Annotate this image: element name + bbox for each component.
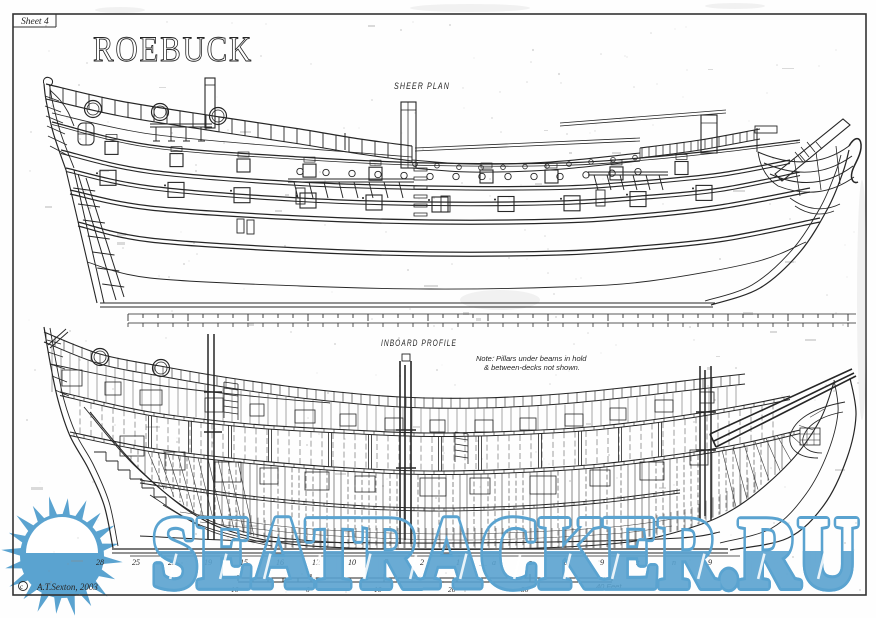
svg-text:INBOARD PROFILE: INBOARD PROFILE (381, 338, 457, 349)
svg-text:& between-decks not shown.: & between-decks not shown. (484, 363, 580, 372)
svg-text:ROEBUCK: ROEBUCK (93, 29, 253, 69)
svg-text:SHEER PLAN: SHEER PLAN (394, 81, 450, 92)
svg-text:28: 28 (96, 558, 104, 567)
svg-text:c: c (20, 583, 23, 591)
svg-text:25: 25 (132, 558, 140, 567)
svg-text:Note: Pillars under beams in: Note: Pillars under beams in hold (476, 354, 587, 363)
svg-text:Sheet 4: Sheet 4 (21, 17, 49, 27)
svg-text:A.T.Sexton, 2003: A.T.Sexton, 2003 (36, 582, 98, 592)
